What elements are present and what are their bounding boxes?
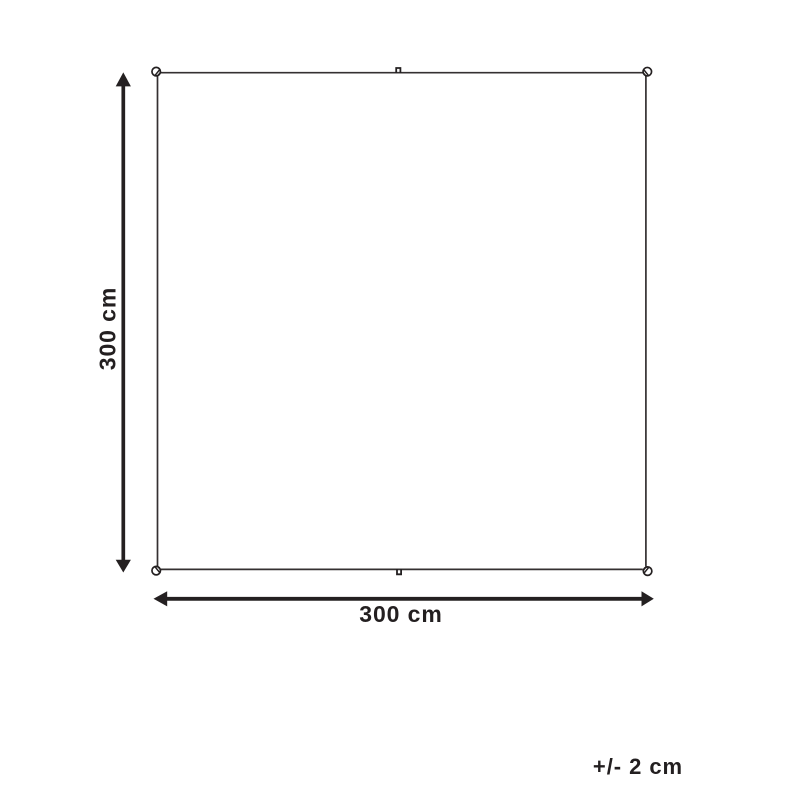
svg-text:+/- 2 cm: +/- 2 cm <box>593 754 683 779</box>
svg-text:300 cm: 300 cm <box>95 287 121 370</box>
svg-text:300 cm: 300 cm <box>359 601 442 627</box>
